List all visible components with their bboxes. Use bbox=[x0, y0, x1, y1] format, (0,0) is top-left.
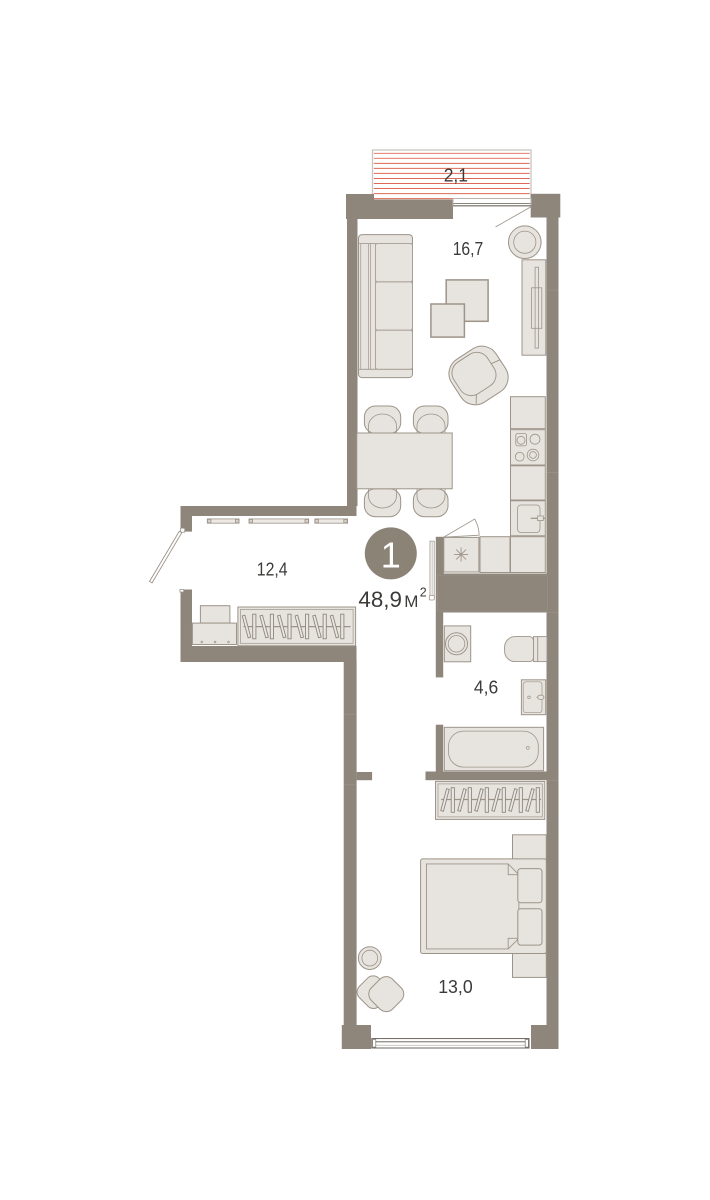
svg-text:М: М bbox=[404, 592, 418, 611]
svg-text:16,7: 16,7 bbox=[453, 239, 484, 259]
svg-text:1: 1 bbox=[381, 534, 401, 575]
svg-text:48,9: 48,9 bbox=[358, 587, 402, 612]
svg-text:2,1: 2,1 bbox=[444, 165, 468, 185]
svg-text:2: 2 bbox=[420, 586, 427, 600]
svg-text:4,6: 4,6 bbox=[474, 678, 498, 698]
svg-text:12,4: 12,4 bbox=[257, 559, 288, 579]
svg-text:13,0: 13,0 bbox=[438, 977, 473, 997]
